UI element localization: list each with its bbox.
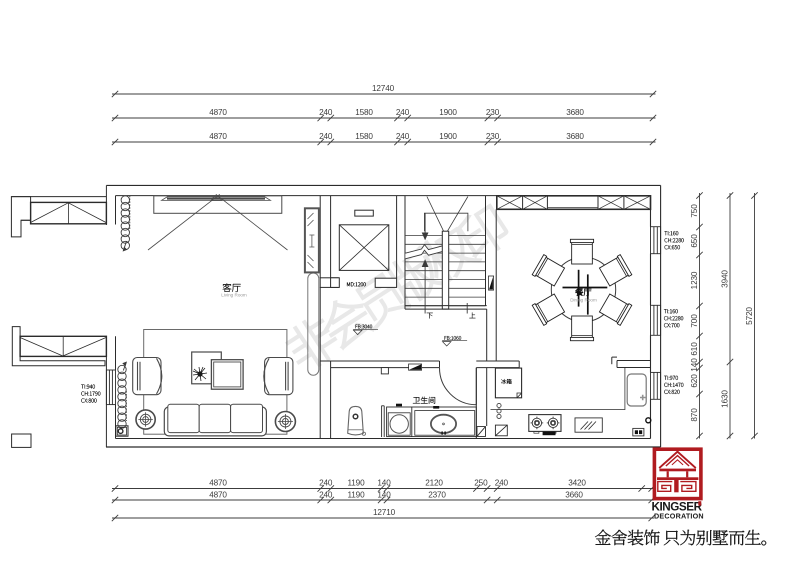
svg-text:1580: 1580 bbox=[355, 108, 373, 117]
svg-text:4870: 4870 bbox=[209, 132, 227, 141]
svg-text:12710: 12710 bbox=[373, 508, 396, 517]
svg-text:240: 240 bbox=[495, 479, 509, 488]
svg-text:650: 650 bbox=[690, 234, 699, 248]
svg-text:5720: 5720 bbox=[745, 307, 754, 325]
svg-text:140: 140 bbox=[377, 479, 391, 488]
svg-text:250: 250 bbox=[474, 479, 488, 488]
svg-text:1630: 1630 bbox=[721, 390, 730, 408]
svg-text:620: 620 bbox=[690, 374, 699, 388]
svg-text:230: 230 bbox=[486, 108, 500, 117]
svg-text:4870: 4870 bbox=[209, 491, 227, 500]
svg-text:240: 240 bbox=[396, 108, 410, 117]
svg-text:140: 140 bbox=[690, 358, 699, 372]
svg-text:240: 240 bbox=[319, 108, 333, 117]
svg-text:3680: 3680 bbox=[566, 108, 584, 117]
svg-text:3680: 3680 bbox=[566, 132, 584, 141]
svg-text:DECORATION: DECORATION bbox=[654, 512, 704, 521]
svg-text:230: 230 bbox=[486, 132, 500, 141]
svg-text:1230: 1230 bbox=[690, 271, 699, 289]
svg-text:3660: 3660 bbox=[565, 491, 583, 500]
svg-text:240: 240 bbox=[396, 132, 410, 141]
svg-text:610: 610 bbox=[690, 342, 699, 356]
svg-text:240: 240 bbox=[319, 479, 333, 488]
svg-text:2370: 2370 bbox=[428, 491, 446, 500]
svg-text:2120: 2120 bbox=[425, 479, 443, 488]
svg-text:140: 140 bbox=[377, 491, 391, 500]
svg-text:4870: 4870 bbox=[209, 108, 227, 117]
svg-text:1190: 1190 bbox=[347, 479, 365, 488]
svg-text:1580: 1580 bbox=[355, 132, 373, 141]
svg-text:700: 700 bbox=[690, 314, 699, 328]
svg-text:1190: 1190 bbox=[347, 491, 365, 500]
svg-text:12740: 12740 bbox=[372, 84, 395, 93]
svg-text:3420: 3420 bbox=[568, 479, 586, 488]
svg-text:750: 750 bbox=[690, 204, 699, 218]
svg-text:1900: 1900 bbox=[439, 108, 457, 117]
svg-text:870: 870 bbox=[690, 408, 699, 422]
svg-text:240: 240 bbox=[319, 132, 333, 141]
svg-text:240: 240 bbox=[319, 491, 333, 500]
svg-text:1900: 1900 bbox=[439, 132, 457, 141]
svg-text:Dining Room: Dining Room bbox=[570, 297, 597, 302]
svg-text:3940: 3940 bbox=[721, 270, 730, 288]
svg-text:4870: 4870 bbox=[209, 479, 227, 488]
svg-text:Living Room: Living Room bbox=[221, 292, 247, 297]
